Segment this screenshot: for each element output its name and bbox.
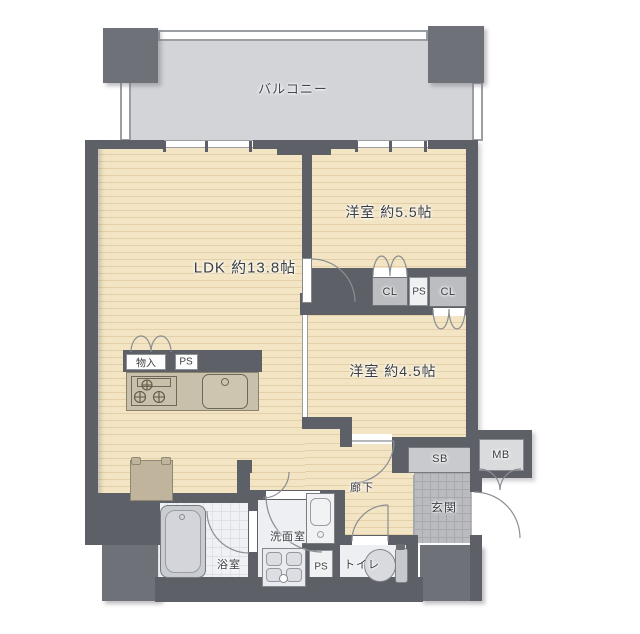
wall-bottom-left-block bbox=[85, 496, 160, 545]
toilet-tank bbox=[395, 548, 408, 583]
wall-frontdoor-stub bbox=[470, 478, 482, 492]
washer-drain bbox=[279, 574, 288, 583]
washer-pad-1 bbox=[266, 552, 282, 566]
label-ps-mid: PS bbox=[412, 287, 425, 298]
wall-stub-ldk-hall-v bbox=[237, 470, 250, 498]
wall-bedroom2-step bbox=[340, 417, 352, 447]
pillar-top-right bbox=[428, 26, 484, 83]
bedroom2-doorway bbox=[352, 434, 392, 444]
room-label-toilet: トイレ bbox=[344, 556, 380, 572]
wall-top-left bbox=[98, 140, 164, 149]
window-ldk-tick-3 bbox=[249, 141, 252, 152]
window-bedroom1-tick-1 bbox=[355, 141, 358, 152]
balcony-rail-right bbox=[472, 82, 483, 141]
window-bedroom1-tick-2 bbox=[389, 141, 392, 152]
room-label-hallway: 廊下 bbox=[350, 479, 374, 495]
balcony-rail-left bbox=[120, 80, 131, 141]
bathroom-doorway bbox=[249, 511, 257, 552]
wall-divider-ldk-bedroom1 bbox=[302, 148, 312, 258]
room-label-ldk: LDK 約13.8帖 bbox=[194, 257, 297, 278]
ldk-cabinet bbox=[130, 460, 173, 501]
label-closet2: CL bbox=[440, 286, 455, 298]
balcony-rail-top bbox=[158, 30, 428, 41]
door-leaf-ldk-bedroom1 bbox=[302, 258, 312, 303]
closet2-doorway bbox=[433, 308, 465, 316]
room-label-washroom: 洗面室 bbox=[270, 528, 306, 544]
room-label-bedroom1: 洋室 約5.5帖 bbox=[345, 202, 432, 222]
wall-shoebox-left bbox=[392, 447, 408, 473]
ldk-cabinet-tab-right bbox=[161, 457, 171, 465]
label-meterbox: MB bbox=[492, 449, 510, 461]
closet1-doorway bbox=[373, 268, 407, 277]
toilet-button bbox=[396, 544, 405, 550]
stove-grill bbox=[137, 378, 171, 387]
vanity-sink bbox=[310, 498, 331, 526]
wall-entrance-right bbox=[470, 535, 482, 601]
washer-pad-2 bbox=[286, 552, 302, 566]
window-ldk bbox=[164, 140, 253, 148]
window-bedroom1 bbox=[357, 140, 428, 148]
wall-shoebox-top bbox=[392, 437, 474, 447]
vanity-faucet bbox=[317, 531, 324, 538]
window-ldk-tick-1 bbox=[163, 141, 166, 152]
label-ps-kitchen: PS bbox=[179, 357, 192, 368]
window-ldk-tick-2 bbox=[205, 141, 208, 152]
room-label-entrance: 玄関 bbox=[431, 499, 457, 516]
pillar-bottom-left bbox=[102, 545, 160, 601]
label-shoebox: SB bbox=[432, 453, 448, 465]
bathtub-drain bbox=[179, 514, 185, 520]
floor-plan: バルコニー LDK 約13.8帖 洋室 約5.5帖 洋室 約4.5帖 CL PS… bbox=[0, 0, 640, 634]
label-closet1: CL bbox=[382, 286, 397, 298]
room-label-bathroom: 浴室 bbox=[217, 556, 241, 572]
ldk-cabinet-tab-left bbox=[131, 457, 141, 465]
label-storage: 物入 bbox=[136, 355, 156, 370]
wall-left bbox=[85, 140, 98, 497]
pillar-top-left bbox=[103, 28, 158, 83]
toilet-doorway bbox=[352, 536, 388, 545]
room-label-balcony: バルコニー bbox=[258, 79, 328, 98]
entrance-step-line bbox=[413, 475, 415, 537]
washer-pad-4 bbox=[286, 568, 302, 582]
window-bedroom1-tick-3 bbox=[424, 141, 427, 152]
door-arc-front bbox=[474, 492, 520, 538]
wall-right bbox=[466, 140, 478, 438]
room-label-bedroom2: 洋室 約4.5帖 bbox=[349, 361, 436, 381]
faucet-icon bbox=[221, 378, 229, 386]
label-ps-bottom: PS bbox=[314, 562, 327, 573]
partition-ldk-bedroom2 bbox=[302, 315, 308, 417]
wall-ldk-bottom bbox=[98, 493, 250, 503]
